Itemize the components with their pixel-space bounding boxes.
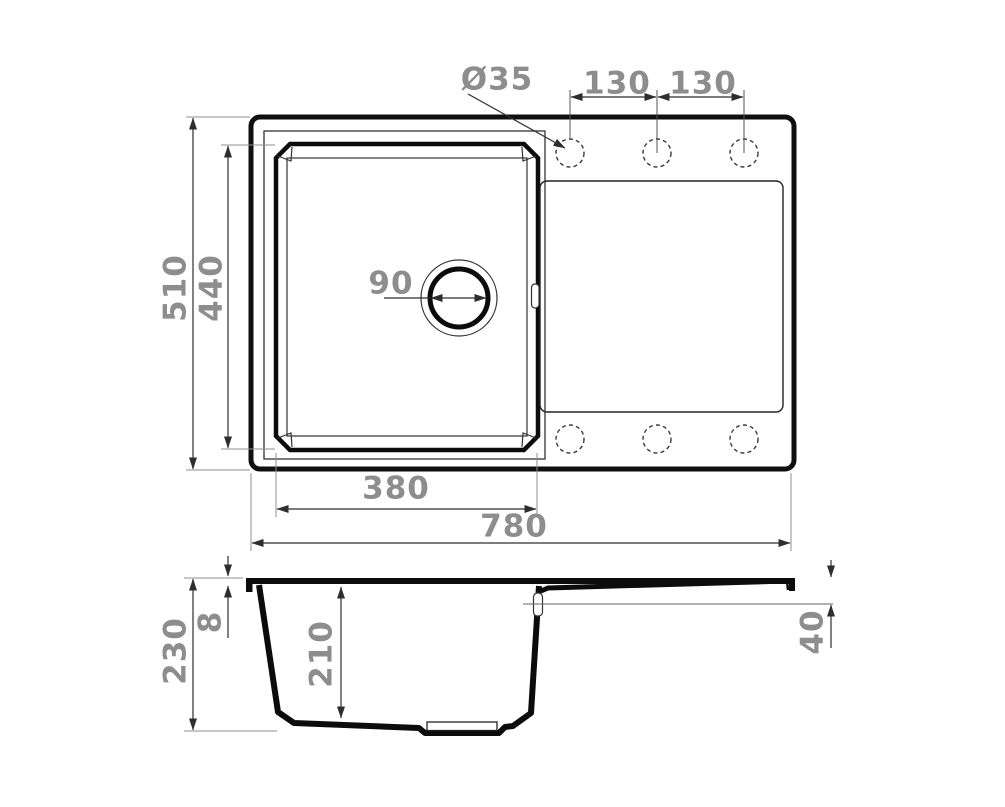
dim-label-drainboard-drop: 40 — [798, 609, 829, 654]
dim-label-bowl-length: 380 — [362, 474, 430, 505]
drainboard-right-tick — [787, 581, 788, 590]
dim-label-bowl-width: 440 — [197, 254, 228, 322]
side-view — [184, 556, 833, 733]
sink-technical-drawing: Ø35 130 130 510 440 90 380 780 230 8 210… — [0, 0, 1005, 807]
dim-label-overall-length: 780 — [480, 512, 548, 543]
dim-label-hole-spacing-2: 130 — [669, 69, 737, 100]
dim-label-hole-spacing-1: 130 — [583, 69, 651, 100]
dim-label-overall-width: 510 — [161, 254, 192, 322]
bowl-profile — [259, 585, 539, 733]
dim-label-hole-diameter: Ø35 — [461, 65, 534, 96]
dim-label-bowl-depth: 210 — [307, 620, 338, 688]
dim-label-drain-diameter: 90 — [368, 269, 413, 300]
top-view — [186, 90, 794, 551]
overflow-slot — [532, 284, 540, 308]
dim-label-rim-thickness: 8 — [196, 611, 227, 634]
drawing-canvas — [0, 0, 1005, 807]
rim-right-lip — [789, 578, 795, 591]
dim-label-overall-depth: 230 — [161, 617, 192, 685]
rim-left-lip — [246, 578, 253, 592]
drain-fitting — [427, 722, 497, 731]
